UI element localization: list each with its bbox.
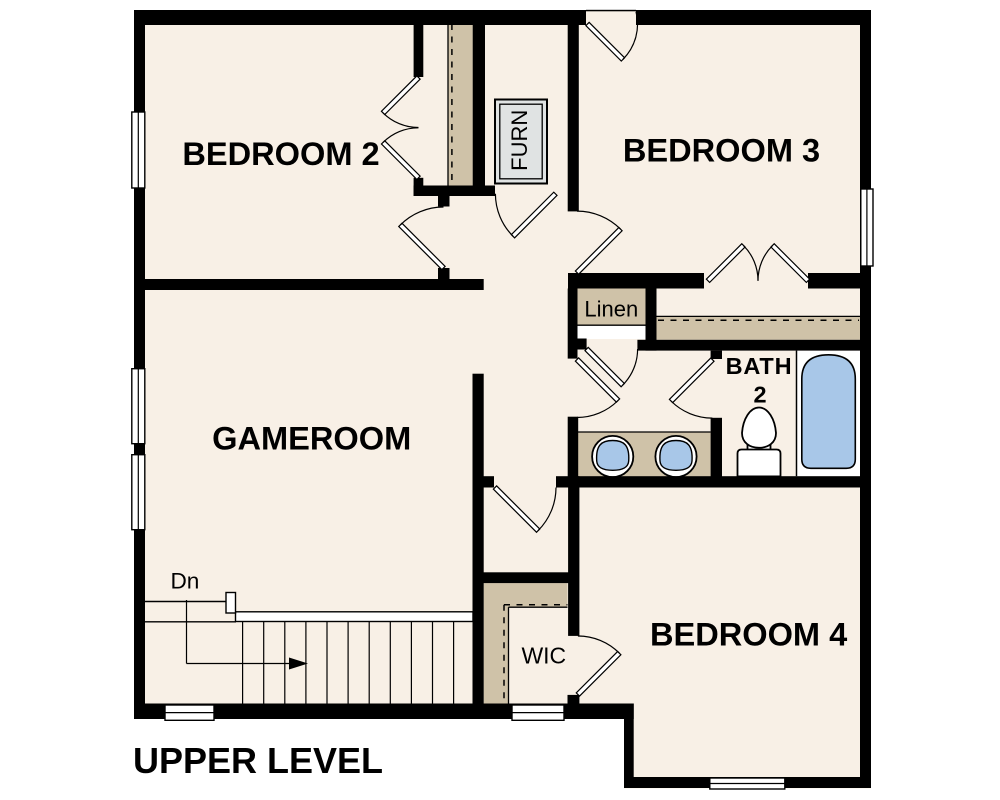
svg-text:UPPER LEVEL: UPPER LEVEL: [133, 740, 383, 781]
svg-text:BEDROOM 4: BEDROOM 4: [650, 615, 847, 652]
svg-text:GAMEROOM: GAMEROOM: [212, 420, 411, 457]
svg-text:BEDROOM 2: BEDROOM 2: [182, 135, 379, 172]
svg-text:2: 2: [753, 381, 766, 407]
svg-text:BEDROOM 3: BEDROOM 3: [623, 131, 820, 168]
svg-text:Dn: Dn: [170, 568, 199, 593]
svg-text:FURN: FURN: [507, 110, 532, 171]
svg-text:Linen: Linen: [584, 297, 638, 322]
svg-text:BATH: BATH: [726, 353, 793, 379]
svg-text:WIC: WIC: [521, 643, 566, 669]
